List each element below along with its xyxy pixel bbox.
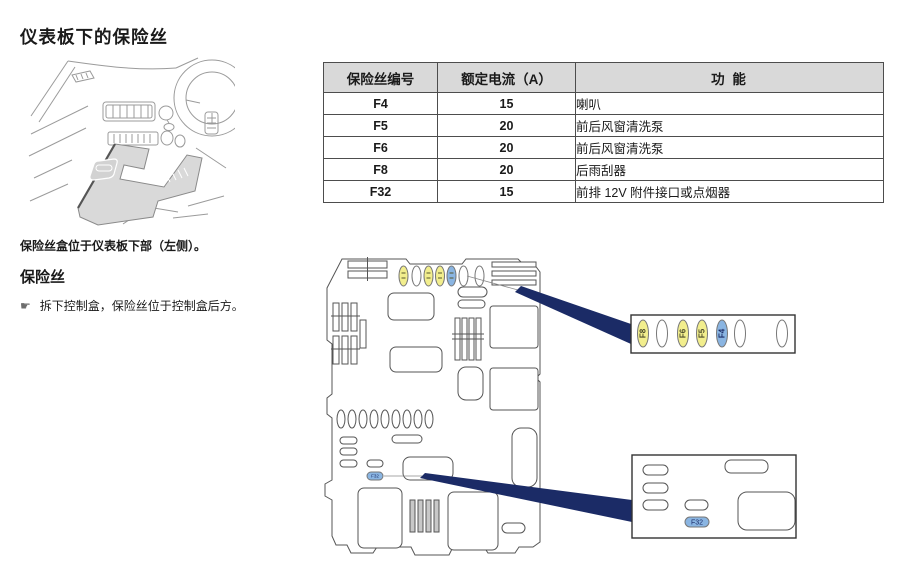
table-row: F32 15 前排 12V 附件接口或点烟器 [324, 181, 884, 203]
fuse-amps: 15 [438, 181, 576, 203]
pointing-hand-icon: ☛ [20, 298, 31, 314]
table-row: F4 15 喇叭 [324, 93, 884, 115]
main-f32-label: F32 [371, 474, 379, 479]
header-function: 功 能 [576, 63, 884, 93]
table-row: F8 20 后雨刮器 [324, 159, 884, 181]
table-row: F5 20 前后风窗清洗泵 [324, 115, 884, 137]
fuse-amps: 20 [438, 137, 576, 159]
instruction-bullet: ☛ 拆下控制盒，保险丝位于控制盒后方。 [20, 298, 322, 314]
fuse-id: F8 [324, 159, 438, 181]
fuse-function: 后雨刮器 [576, 159, 884, 181]
section-heading: 保险丝 [20, 266, 65, 287]
manual-page: 仪表板下的保险丝 [0, 0, 901, 563]
inset-fuse-label-f5: F5 [698, 328, 707, 338]
header-rated-current: 额定电流（A） [438, 63, 576, 93]
dashboard-illustration [28, 56, 235, 228]
inset-f32-area: F32 [632, 455, 796, 538]
fuse-id: F32 [324, 181, 438, 203]
fuse-id: F6 [324, 137, 438, 159]
table-row: F6 20 前后风窗清洗泵 [324, 137, 884, 159]
inset-f32-label: F32 [691, 520, 703, 527]
fuse-amps: 20 [438, 159, 576, 181]
fuse-box-diagram: F32 F8 F6 [320, 248, 901, 563]
fuse-function: 喇叭 [576, 93, 884, 115]
fuse-amps: 15 [438, 93, 576, 115]
header-fuse-number: 保险丝编号 [324, 63, 438, 93]
inset-fuse-label-f6: F6 [679, 328, 688, 338]
fuse-id: F5 [324, 115, 438, 137]
fuse-access-panel [78, 144, 202, 225]
main-f32-fuse: F32 [367, 472, 383, 480]
page-title: 仪表板下的保险丝 [20, 24, 168, 49]
illustration-caption: 保险丝盒位于仪表板下部（左侧）。 [20, 237, 320, 254]
inset-fuse-label-f4: F4 [718, 328, 727, 338]
fuse-amps: 20 [438, 115, 576, 137]
fuse-id: F4 [324, 93, 438, 115]
fuse-function: 前后风窗清洗泵 [576, 137, 884, 159]
inset-fuse-label-f8: F8 [639, 328, 648, 338]
instruction-text: 拆下控制盒，保险丝位于控制盒后方。 [40, 298, 244, 314]
inset-fuse-row: F8 F6 F5 F4 [631, 315, 795, 353]
fuse-table: 保险丝编号 额定电流（A） 功 能 F4 15 喇叭 F5 20 前后风窗清洗泵… [323, 62, 884, 203]
table-header-row: 保险丝编号 额定电流（A） 功 能 [324, 63, 884, 93]
bottom-oval-row [337, 410, 433, 428]
fuse-function: 前排 12V 附件接口或点烟器 [576, 181, 884, 203]
fuse-function: 前后风窗清洗泵 [576, 115, 884, 137]
